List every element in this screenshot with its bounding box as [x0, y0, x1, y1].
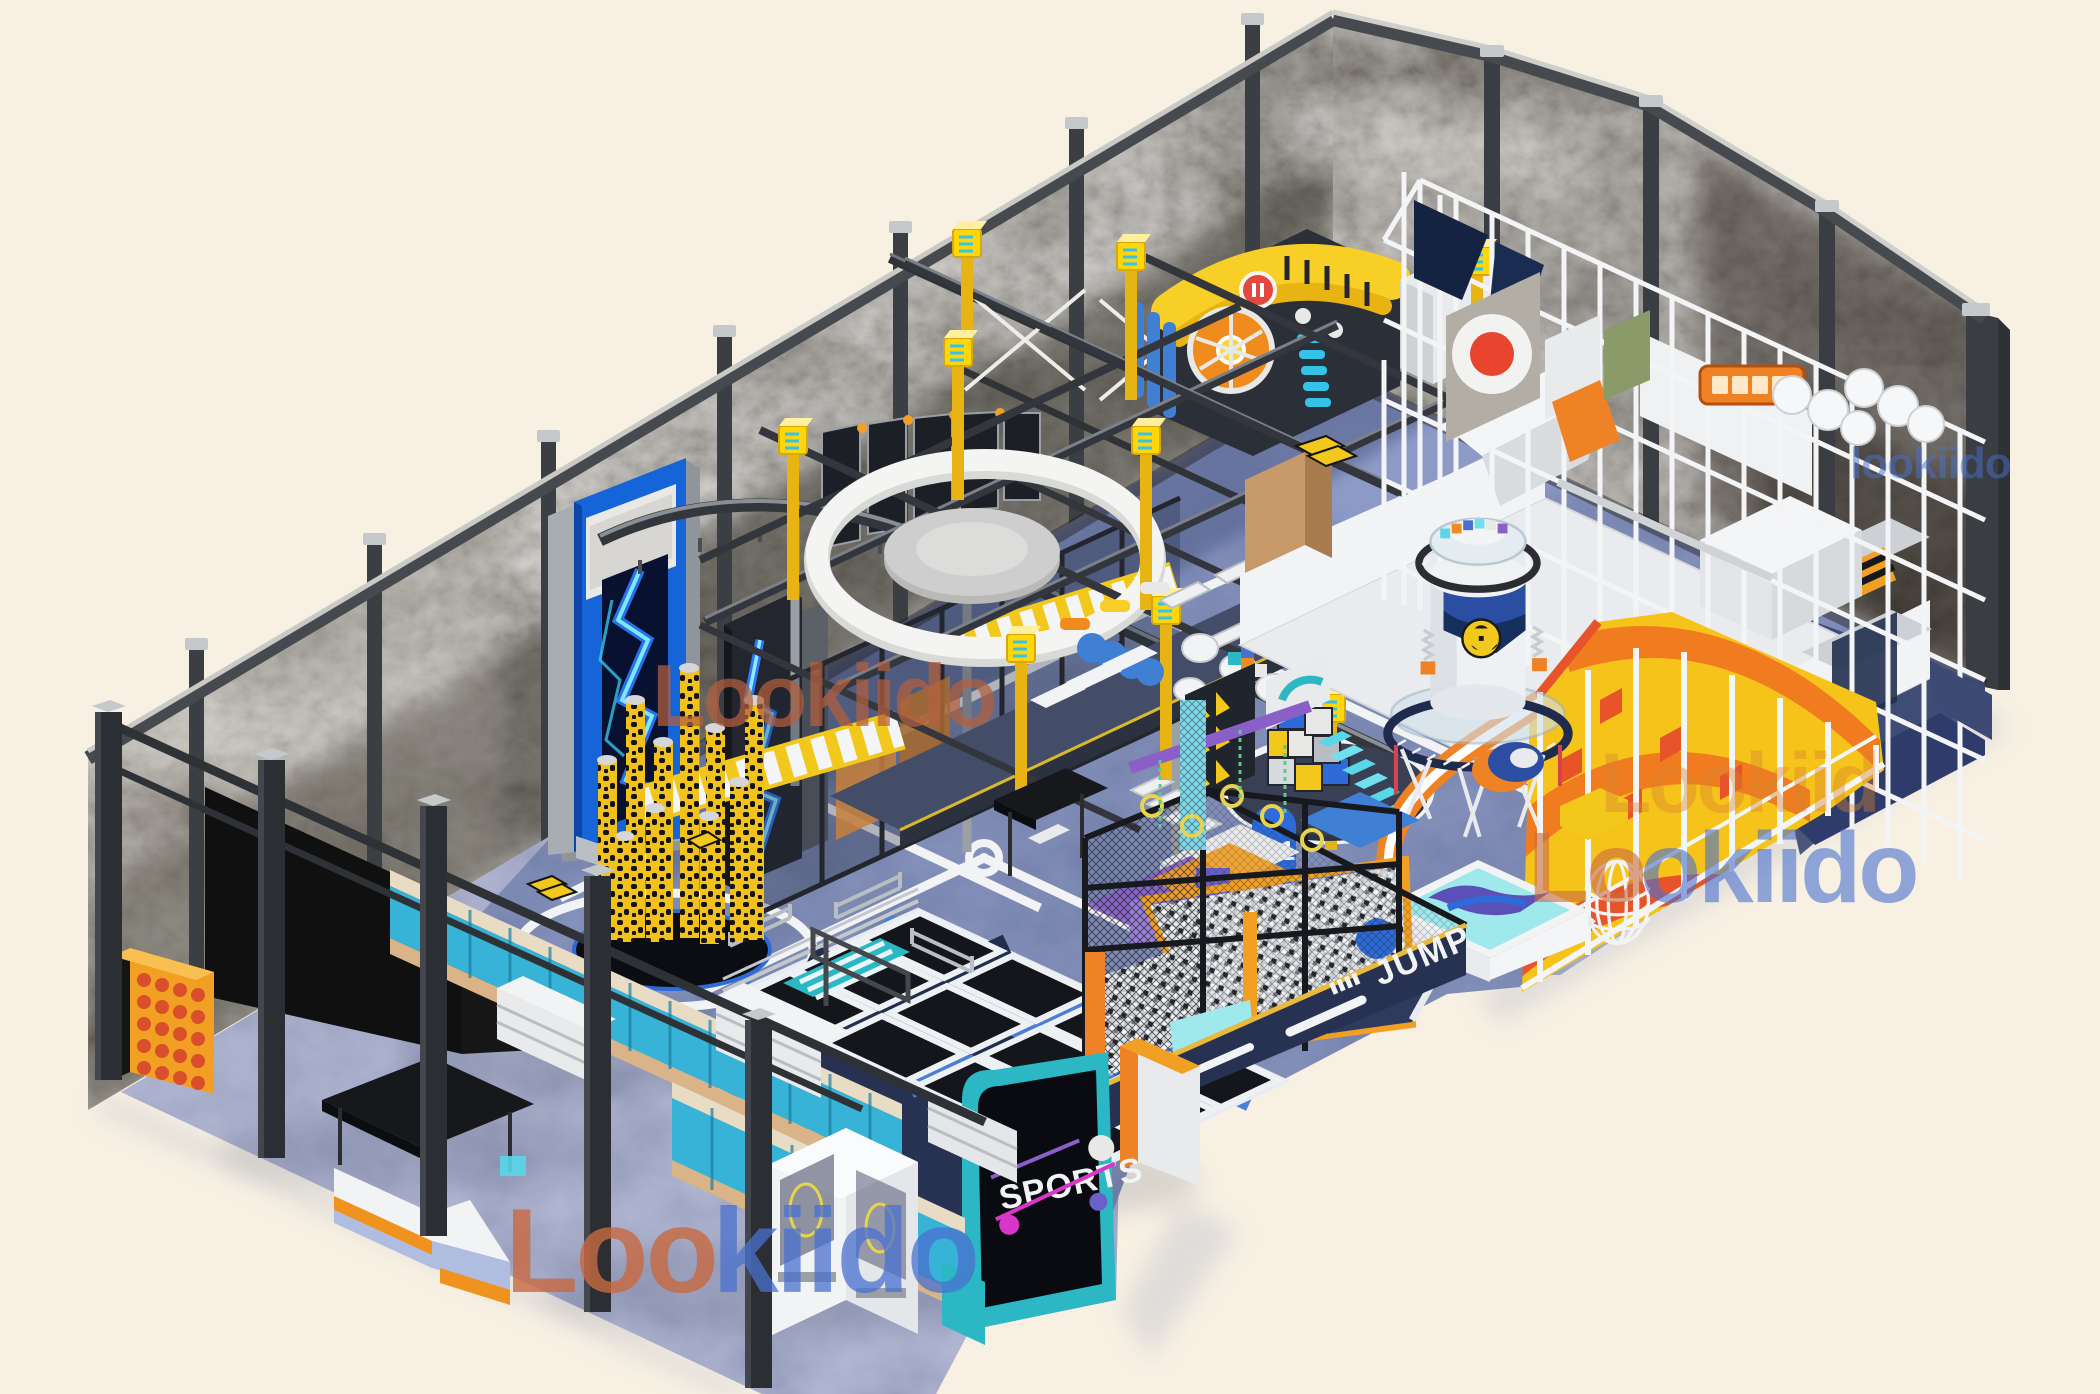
svg-text:Lookiid: Lookiid [1600, 736, 1878, 830]
svg-text:Loo: Loo [505, 1184, 716, 1318]
svg-text:lookiido: lookiido [1850, 439, 2011, 488]
svg-text:kiido: kiido [712, 1184, 977, 1318]
svg-text:Lookiido: Lookiido [652, 646, 995, 745]
